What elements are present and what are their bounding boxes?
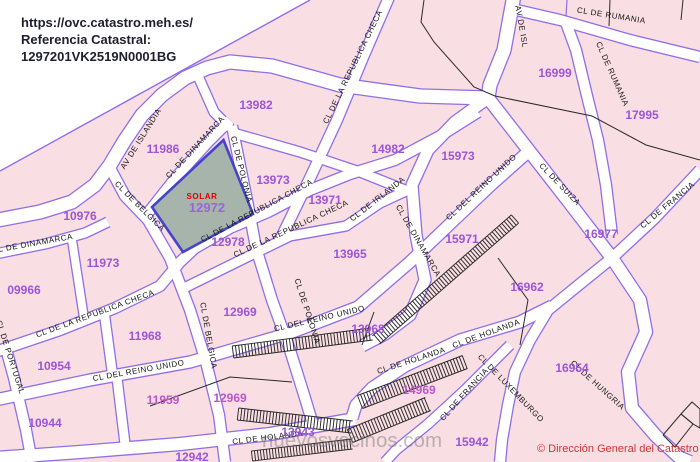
svg-text:12969: 12969 xyxy=(213,391,247,405)
svg-text:12978: 12978 xyxy=(211,235,245,249)
svg-text:1297201VK2519N0001BG: 1297201VK2519N0001BG xyxy=(21,49,176,64)
svg-text:11986: 11986 xyxy=(147,142,180,156)
svg-text:13971: 13971 xyxy=(308,193,342,207)
svg-text:16999: 16999 xyxy=(538,66,572,80)
svg-text:https://ovc.catastro.meh.es/: https://ovc.catastro.meh.es/ xyxy=(21,15,193,30)
svg-text:09966: 09966 xyxy=(7,283,41,297)
svg-text:15942: 15942 xyxy=(455,435,489,449)
svg-text:10954: 10954 xyxy=(37,359,71,373)
svg-text:10976: 10976 xyxy=(63,209,97,223)
svg-text:14969: 14969 xyxy=(402,383,436,397)
svg-text:14982: 14982 xyxy=(371,142,405,156)
svg-text:17995: 17995 xyxy=(625,108,659,122)
svg-text:12942: 12942 xyxy=(175,450,209,462)
svg-text:11973: 11973 xyxy=(87,256,120,270)
svg-text:13965: 13965 xyxy=(333,247,367,261)
svg-text:13973: 13973 xyxy=(256,173,290,187)
svg-text:13968: 13968 xyxy=(351,322,385,336)
svg-text:16977: 16977 xyxy=(584,227,618,241)
svg-text:© Dirección General del Catast: © Dirección General del Catastro xyxy=(537,443,699,455)
svg-text:11959: 11959 xyxy=(147,393,180,407)
svg-text:15971: 15971 xyxy=(445,232,479,246)
svg-text:15973: 15973 xyxy=(441,149,475,163)
svg-text:13982: 13982 xyxy=(239,98,273,112)
svg-text:12972: 12972 xyxy=(189,200,225,215)
svg-text:nuevosvecinos.com: nuevosvecinos.com xyxy=(262,429,442,452)
svg-text:Referencia Catastral:: Referencia Catastral: xyxy=(21,32,151,47)
svg-text:12969: 12969 xyxy=(223,305,257,319)
svg-text:11968: 11968 xyxy=(129,329,162,343)
svg-text:16962: 16962 xyxy=(510,280,544,294)
svg-text:16954: 16954 xyxy=(555,361,589,375)
svg-text:10944: 10944 xyxy=(28,416,62,430)
